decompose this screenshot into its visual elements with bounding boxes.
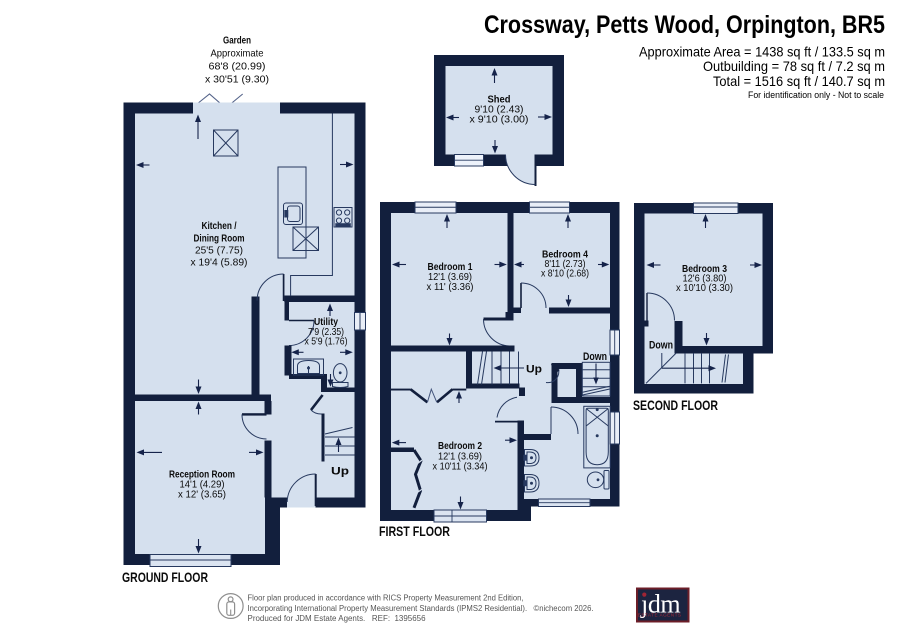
svg-text:Total = 1516 sq ft / 140.7 sq: Total = 1516 sq ft / 140.7 sq m [713,73,885,89]
svg-text:Floor plan produced in accorda: Floor plan produced in accordance with R… [248,593,524,602]
svg-text:Produced for JDM Estate Agents: Produced for JDM Estate Agents. REF: 139… [248,614,427,623]
svg-text:Dining Room: Dining Room [194,233,245,245]
svg-text:25'5 (7.75): 25'5 (7.75) [195,245,243,257]
svg-text:Kitchen /: Kitchen / [202,220,237,232]
svg-text:Up: Up [331,466,349,478]
svg-text:Approximate: Approximate [211,48,264,60]
svg-text:Down: Down [583,351,607,363]
svg-text:68'8 (20.99): 68'8 (20.99) [209,61,266,73]
svg-text:FIRST FLOOR: FIRST FLOOR [379,523,450,539]
svg-text:For identification only - Not: For identification only - Not to scale [748,90,884,100]
svg-text:x 10'10 (3.30): x 10'10 (3.30) [676,282,733,294]
svg-text:x 30'51 (9.30): x 30'51 (9.30) [205,74,269,86]
svg-text:x 9'10 (3.00): x 9'10 (3.00) [470,114,529,126]
svg-text:SECOND FLOOR: SECOND FLOOR [633,397,718,413]
svg-text:x 5'9 (1.76): x 5'9 (1.76) [305,336,348,348]
svg-text:x 8'10 (2.68): x 8'10 (2.68) [541,268,589,280]
svg-text:x 19'4 (5.89): x 19'4 (5.89) [191,257,248,269]
svg-text:ESTATE AGENTS: ESTATE AGENTS [638,613,682,618]
svg-text:Garden: Garden [223,35,251,47]
svg-text:Outbuilding = 78 sq ft / 7.2 s: Outbuilding = 78 sq ft / 7.2 sq m [703,58,885,74]
svg-text:GROUND FLOOR: GROUND FLOOR [122,569,208,585]
svg-text:Down: Down [649,340,673,352]
svg-text:x 10'11 (3.34): x 10'11 (3.34) [433,461,488,473]
svg-text:Crossway, Petts Wood, Orpingto: Crossway, Petts Wood, Orpington, BR5 [484,11,885,39]
svg-text:Incorporating International Pr: Incorporating International Property Mea… [248,604,594,613]
svg-text:x 11' (3.36): x 11' (3.36) [427,281,474,293]
svg-text:Up: Up [526,364,542,376]
svg-text:x 12' (3.65): x 12' (3.65) [178,489,226,501]
